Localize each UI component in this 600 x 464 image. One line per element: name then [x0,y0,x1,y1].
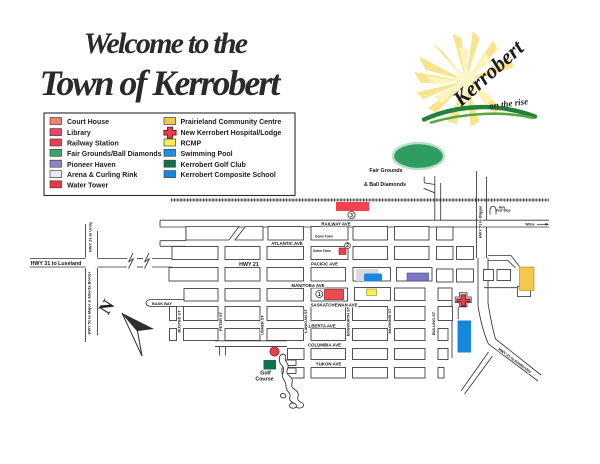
svg-text:3: 3 [350,213,353,219]
svg-text:Course: Course [255,377,273,383]
svg-text:Town of Kerrobert: Town of Kerrobert [40,63,282,103]
svg-text:RCMP: RCMP [181,141,202,148]
svg-text:Kerrobert Composite School: Kerrobert Composite School [181,172,276,179]
svg-text:ATLANTIC AVE: ATLANTIC AVE [271,241,302,246]
svg-text:New Kerrobert Hospital/Lodge: New Kerrobert Hospital/Lodge [181,130,282,137]
svg-text:SASKATCHEWAN AVE: SASKATCHEWAN AVE [311,302,358,307]
svg-text:Water Tower: Water Tower [67,182,109,189]
svg-text:McGINNIS ST: McGINNIS ST [387,308,392,333]
svg-text:Court House: Court House [67,119,109,126]
svg-text:Rest Stop: Rest Stop [496,209,511,213]
svg-text:Prairieland Community Centre: Prairieland Community Centre [181,119,282,126]
svg-text:PACIFIC AVE: PACIFIC AVE [311,262,338,267]
svg-text:PETER ST: PETER ST [218,311,223,331]
svg-text:Pioneer Haven: Pioneer Haven [67,162,116,169]
svg-text:HWY 21: HWY 21 [239,262,259,268]
svg-text:HWY 31 to Luseland: HWY 31 to Luseland [31,261,82,267]
svg-text:BASK BAY: BASK BAY [152,301,172,306]
svg-text:ALBERTA AVE: ALBERTA AVE [305,323,335,328]
svg-text:Wilkie: Wilkie [525,222,534,226]
svg-text:LANIGAN ST: LANIGAN ST [303,308,308,332]
svg-text:Fair Grounds: Fair Grounds [369,168,402,174]
svg-text:Down Town: Down Town [313,249,331,253]
svg-text:Swimming Pool: Swimming Pool [181,151,233,158]
svg-text:HWY 51 to Major & Alberta Bord: HWY 51 to Major & Alberta Border [87,271,92,334]
svg-text:Fair Grounds/Ball Diamonds: Fair Grounds/Ball Diamonds [67,151,162,158]
svg-text:Railway Station: Railway Station [67,141,119,148]
svg-text:RAILWAY AVE: RAILWAY AVE [321,221,350,226]
svg-text:BUSTED ST: BUSTED ST [177,310,182,333]
svg-text:YUKON AVE: YUKON AVE [316,361,342,366]
svg-text:1: 1 [318,292,321,298]
svg-text:2: 2 [346,243,349,249]
svg-text:Down Town: Down Town [315,235,333,239]
svg-text:Kerrobert Golf Club: Kerrobert Golf Club [181,162,246,169]
svg-text:& Ball Diamonds: & Ball Diamonds [364,182,406,188]
svg-text:BULLING ST: BULLING ST [431,311,436,335]
svg-text:MANITOBA AVE: MANITOBA AVE [291,283,324,288]
svg-text:COLUMBIA AVE: COLUMBIA AVE [308,342,341,347]
svg-text:USHER ST: USHER ST [260,315,265,335]
svg-text:BOSWORTH ST: BOSWORTH ST [346,306,351,336]
svg-text:Arena & Curling Rink: Arena & Curling Rink [67,172,138,179]
svg-text:Welcome to the: Welcome to the [84,27,248,60]
svg-text:HWY 21 to Unity: HWY 21 to Unity [88,221,93,252]
svg-text:Library: Library [67,130,91,137]
svg-text:HWY 51 to Biggar: HWY 51 to Biggar [478,205,483,238]
